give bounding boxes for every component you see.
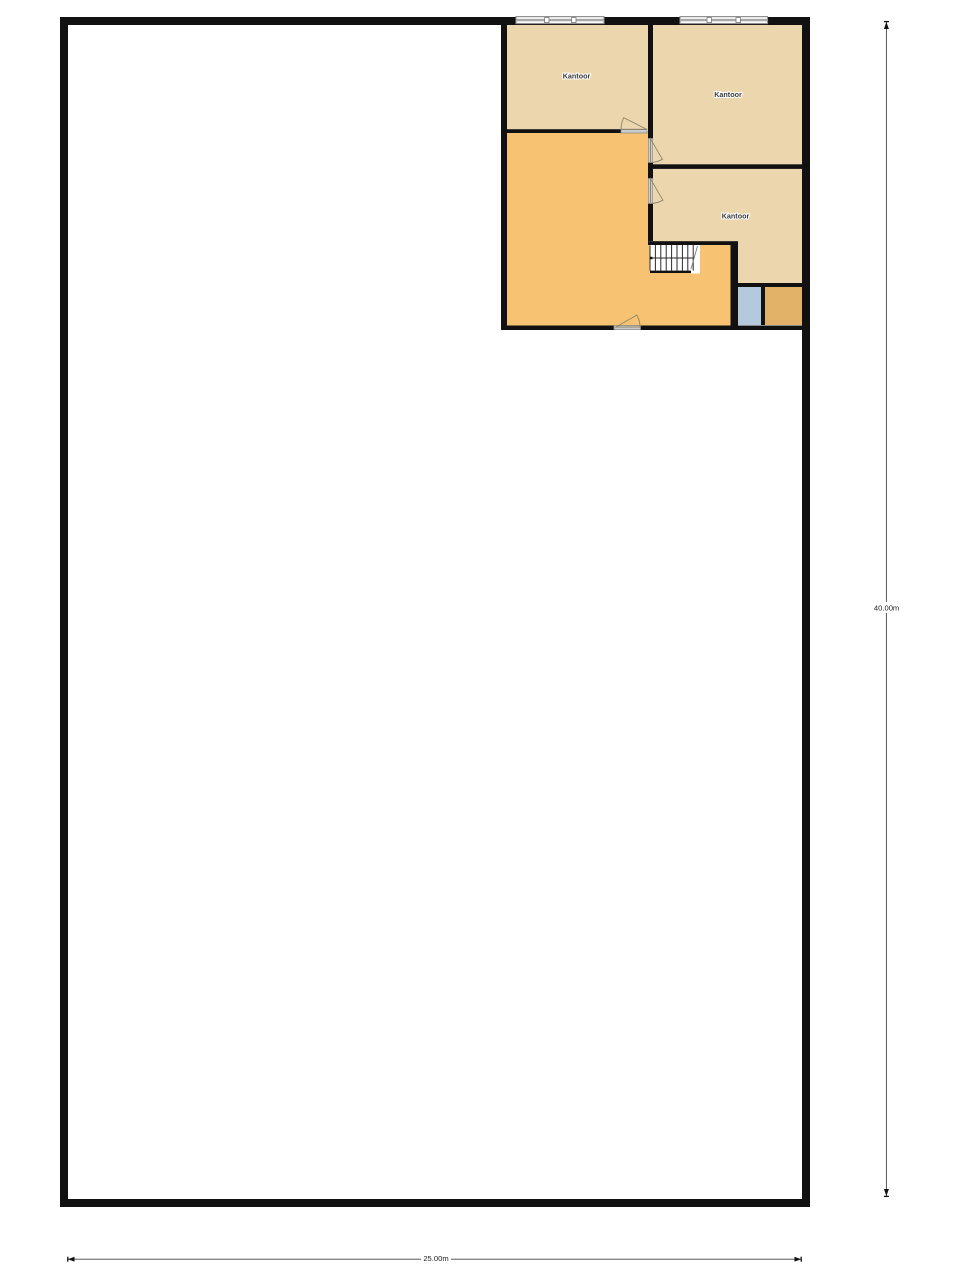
svg-text:40.00m: 40.00m [874,604,899,613]
svg-text:Kantoor: Kantoor [722,211,750,220]
svg-text:25.00m: 25.00m [423,1254,448,1263]
svg-text:Kantoor: Kantoor [563,71,591,80]
svg-text:Kantoor: Kantoor [714,90,742,99]
